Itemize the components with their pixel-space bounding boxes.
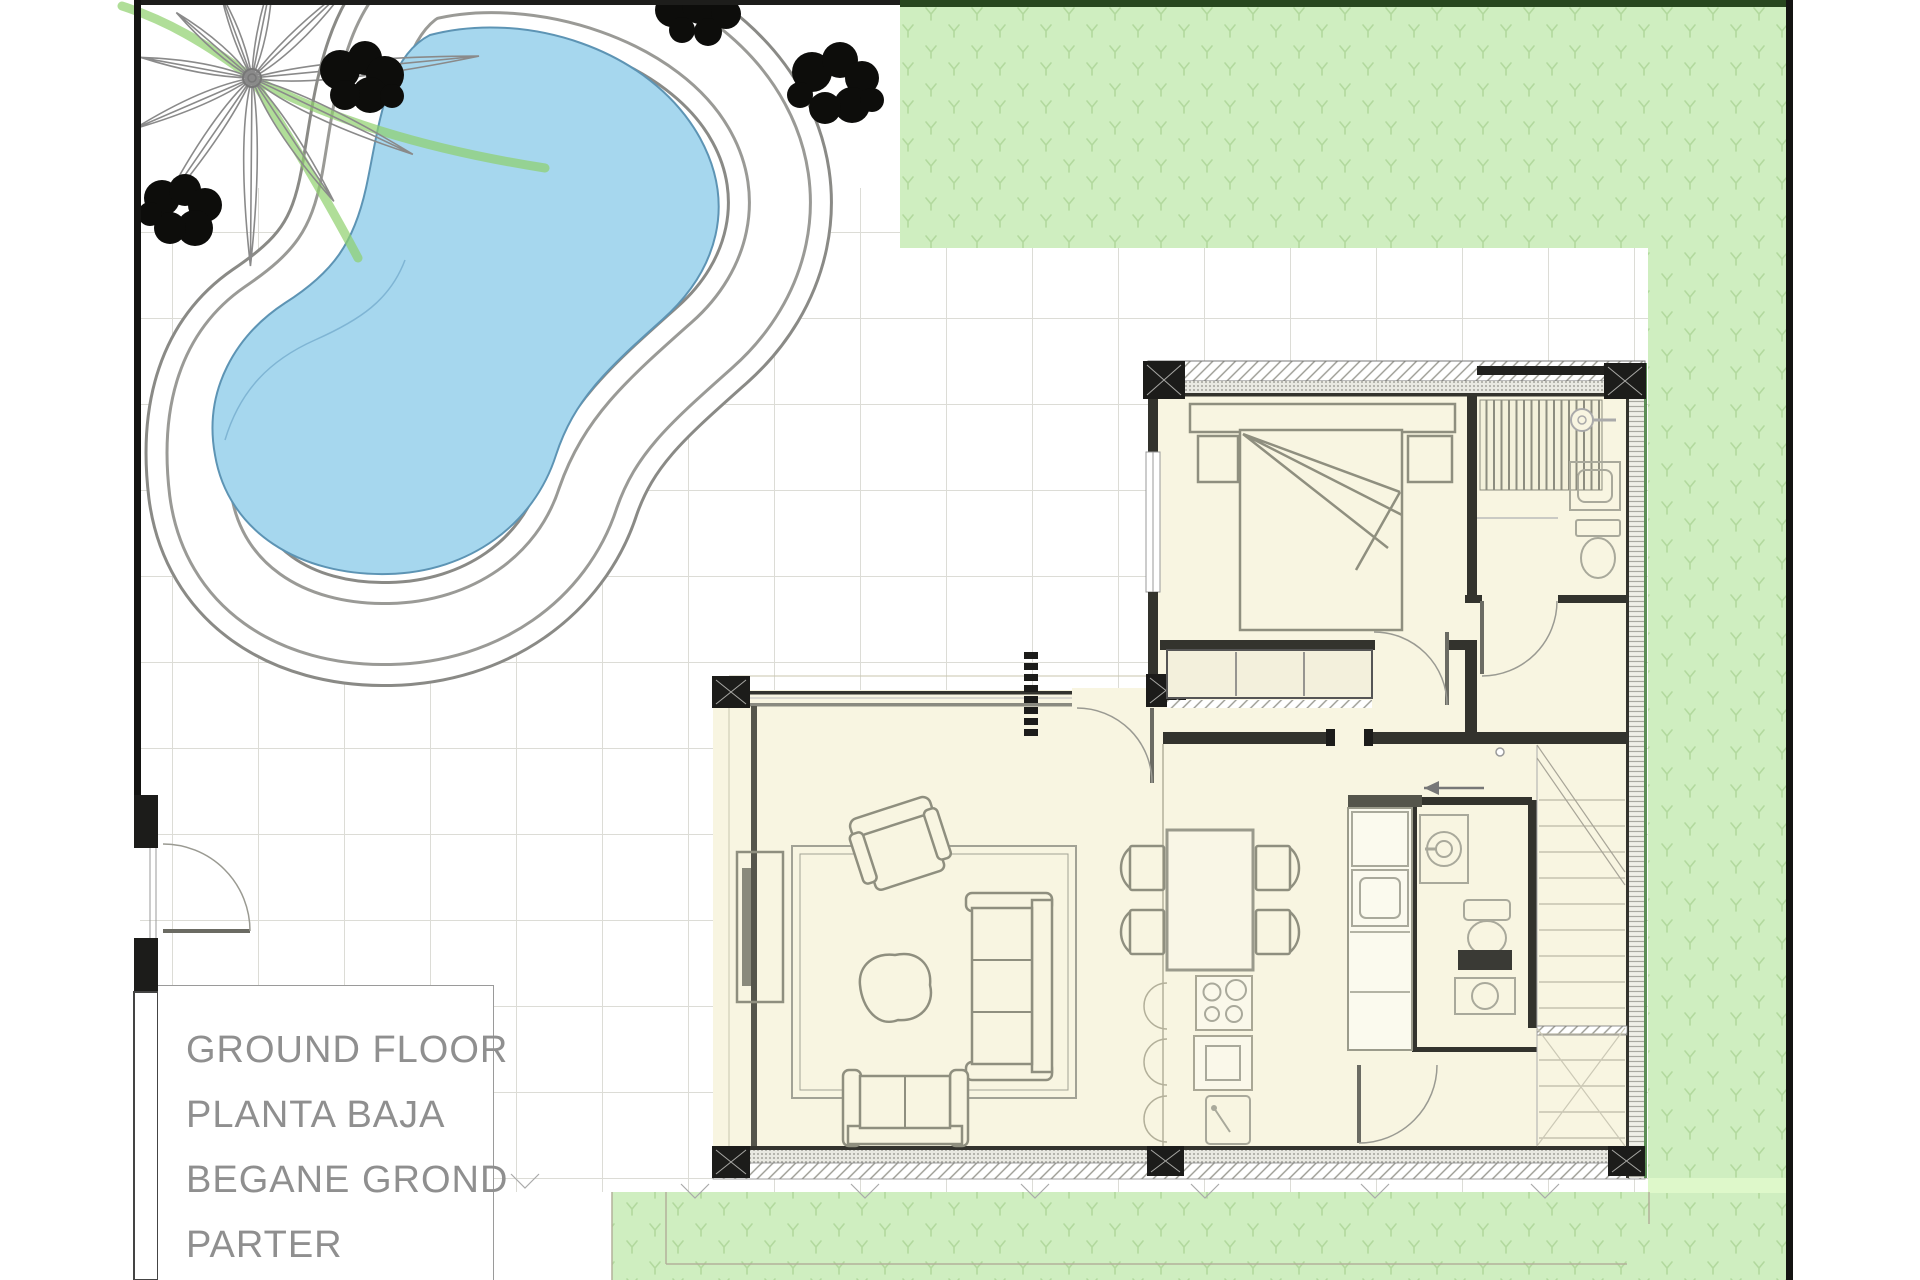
oven bbox=[1194, 1036, 1252, 1090]
title-block: GROUND FLOOR PLANTA BAJA BEGANE GROND PA… bbox=[158, 985, 494, 1280]
column bbox=[1604, 363, 1646, 399]
wall-bath-bottom-left bbox=[1465, 595, 1482, 603]
wall-mid-right bbox=[1372, 732, 1627, 744]
wall-living-left bbox=[751, 706, 757, 1150]
title-line-romanian: PARTER bbox=[186, 1213, 493, 1278]
wall-utility-top bbox=[1348, 795, 1422, 807]
wall-top-insulation bbox=[1148, 381, 1645, 393]
title-line-english: GROUND FLOOR bbox=[186, 1018, 493, 1083]
loveseat bbox=[843, 1070, 968, 1146]
entry-door-gap bbox=[1072, 688, 1152, 710]
bush-left bbox=[138, 174, 222, 246]
dining-table bbox=[1167, 830, 1253, 970]
boundary-top-grass-segment bbox=[900, 0, 1788, 7]
wall-top-inner-line bbox=[1160, 393, 1627, 397]
boundary-left-line bbox=[134, 0, 141, 795]
wall-bed-bath-divider bbox=[1467, 395, 1477, 603]
wall-cap-2 bbox=[1364, 729, 1373, 746]
title-line-spanish: PLANTA BAJA bbox=[186, 1083, 493, 1148]
wall-right-mesh bbox=[1629, 363, 1644, 1178]
wall-utility-right bbox=[1528, 800, 1537, 1028]
pouf bbox=[860, 954, 931, 1022]
grass-bright-band bbox=[1648, 1178, 1788, 1193]
wall-bedroom-hall-stub bbox=[1445, 640, 1477, 650]
bed-headboard bbox=[1190, 404, 1455, 432]
gate-door bbox=[163, 844, 250, 931]
title-line-dutch: BEGANE GROND bbox=[186, 1148, 493, 1213]
bath2-counter bbox=[1458, 950, 1512, 970]
wall-utility-bottom bbox=[1412, 1047, 1537, 1052]
column bbox=[1147, 1146, 1184, 1176]
gate-opening-lines bbox=[150, 848, 156, 938]
wall-bath-bottom-right bbox=[1558, 595, 1627, 603]
wall-bedroom-left-upper bbox=[1148, 395, 1158, 452]
column bbox=[712, 1146, 750, 1178]
bathroom-window-band bbox=[1477, 366, 1605, 375]
cooktop bbox=[1196, 976, 1252, 1030]
wall-right-inner-line bbox=[1626, 363, 1629, 1178]
wall-hall-vertical bbox=[1465, 650, 1477, 732]
sofa bbox=[966, 893, 1052, 1080]
column bbox=[1143, 361, 1185, 399]
gate-post-upper bbox=[134, 795, 158, 848]
wall-mid-left bbox=[1163, 732, 1330, 744]
wall-right-outer-green bbox=[1644, 363, 1647, 1178]
column bbox=[1608, 1146, 1645, 1176]
stair-start-dot bbox=[1496, 748, 1504, 756]
closet bbox=[1167, 650, 1372, 698]
house bbox=[712, 361, 1647, 1179]
wall-bedroom-left-lower bbox=[1148, 592, 1158, 676]
kitchen-tall-units bbox=[1348, 808, 1412, 1050]
wall-cap-1 bbox=[1326, 729, 1335, 746]
wall-bedroom-hall bbox=[1160, 640, 1375, 650]
grass-bottom-strip bbox=[612, 1192, 1788, 1280]
boundary-right-line bbox=[1786, 0, 1793, 1280]
column bbox=[712, 676, 750, 708]
grass-top-right bbox=[900, 4, 1788, 248]
boundary-fence-lower bbox=[134, 992, 158, 1280]
site-plan: GROUND FLOOR PLANTA BAJA BEGANE GROND PA… bbox=[0, 0, 1920, 1280]
grass-right-strip bbox=[1648, 248, 1788, 1280]
closet-wall-hatch bbox=[1167, 700, 1372, 708]
wall-utility-top2 bbox=[1422, 797, 1532, 805]
boundary-top-left-segment bbox=[134, 0, 904, 5]
gate-post-lower bbox=[134, 938, 158, 992]
